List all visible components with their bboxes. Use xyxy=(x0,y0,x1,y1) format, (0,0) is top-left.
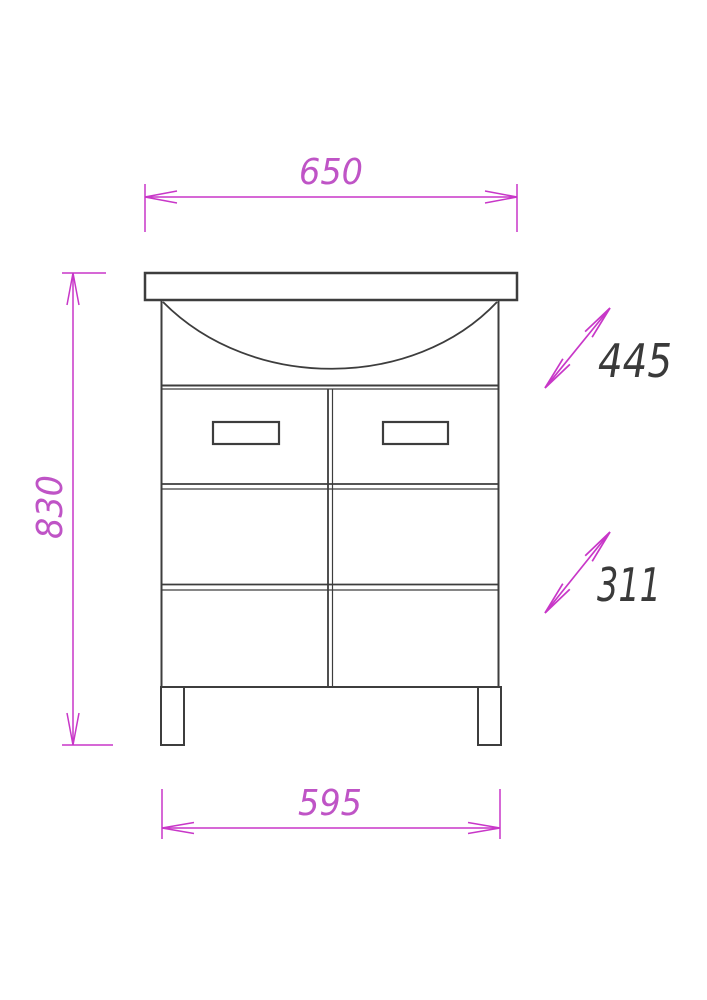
section-label-lower: 311 xyxy=(597,558,661,612)
dimension-bottom-width: 595 xyxy=(162,783,500,839)
drawing-canvas: 650 830 595 445 311 xyxy=(0,0,707,1000)
dimension-label-overall-height: 830 xyxy=(30,475,71,539)
dimension-top-width: 650 xyxy=(145,152,517,232)
dimension-overall-height: 830 xyxy=(30,273,113,745)
right-door-handle xyxy=(383,422,448,444)
countertop xyxy=(145,273,517,300)
right-leg xyxy=(478,687,501,745)
left-door-handle xyxy=(213,422,279,444)
left-leg xyxy=(161,687,184,745)
dimension-label-top-width: 650 xyxy=(299,152,363,193)
dimension-label-bottom-width: 595 xyxy=(298,783,362,824)
sink-basin-curve xyxy=(163,302,497,369)
dimension-upper-section: 445 xyxy=(545,308,672,388)
section-label-upper: 445 xyxy=(598,334,672,388)
vanity-cabinet-front-view xyxy=(145,273,517,745)
dimension-lower-section: 311 xyxy=(545,532,661,613)
